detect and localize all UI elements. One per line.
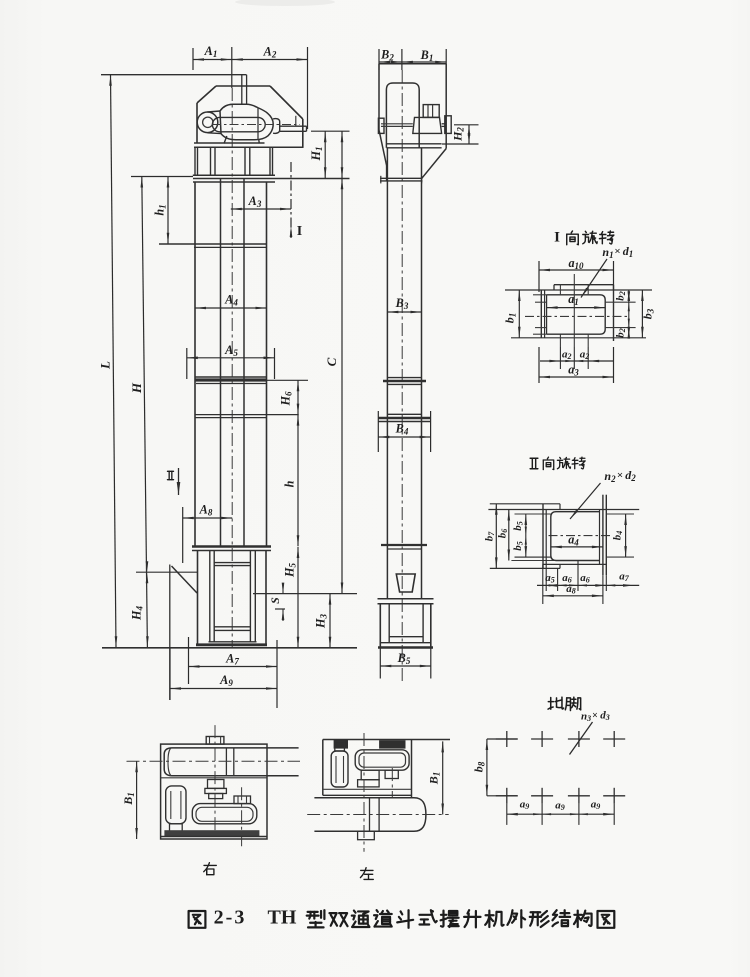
svg-text:H: H — [129, 382, 144, 394]
svg-text:2-3: 2-3 — [214, 907, 247, 929]
svg-text:I: I — [297, 224, 302, 239]
svg-text:TH: TH — [268, 907, 297, 929]
svg-text:×: × — [592, 710, 598, 721]
svg-text:I: I — [554, 229, 560, 245]
svg-text:C: C — [324, 357, 339, 366]
svg-text:×: × — [617, 470, 623, 482]
svg-text:S: S — [268, 597, 282, 604]
svg-text:h: h — [282, 480, 296, 487]
svg-text:L: L — [97, 361, 112, 370]
svg-text:×: × — [614, 246, 620, 258]
